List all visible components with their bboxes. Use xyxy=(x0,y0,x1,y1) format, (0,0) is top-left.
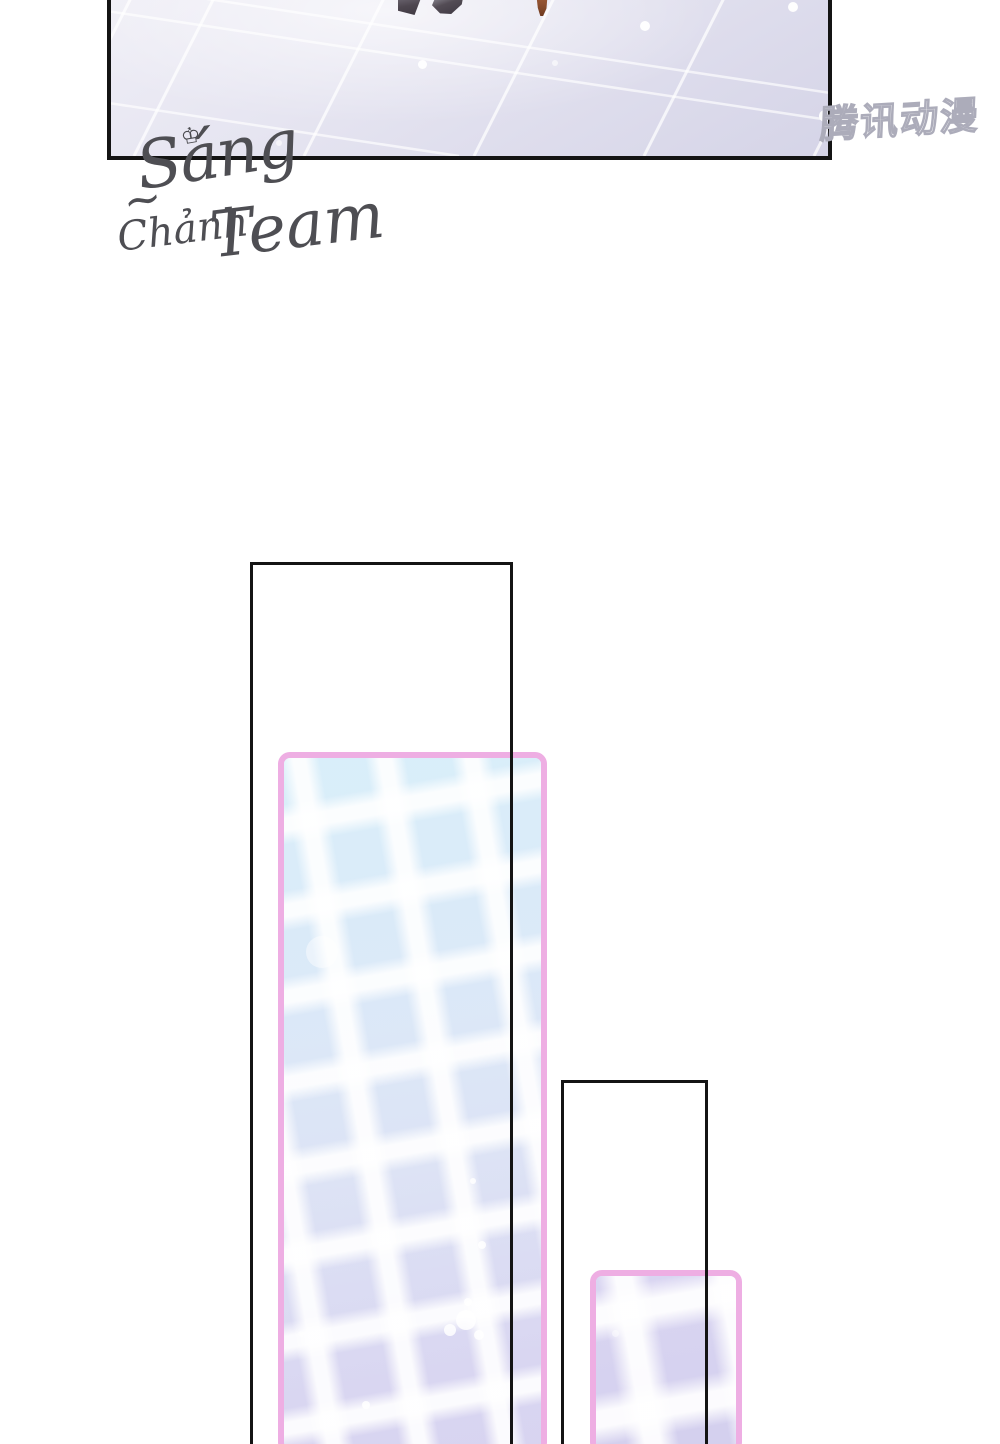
sparkle-dot xyxy=(552,60,558,66)
sparkle-dot xyxy=(788,2,798,12)
sparkle-dot xyxy=(418,60,427,69)
panel-frame-large xyxy=(250,562,513,1444)
comic-page: 腾讯动漫 ♔ Sáng ~ Chảnh Team xyxy=(0,0,1000,1444)
signature-word-team: Team xyxy=(207,184,388,269)
sparkle-dot xyxy=(640,21,650,31)
tencent-comics-watermark: 腾讯动漫 xyxy=(819,97,980,145)
panel-frame-small xyxy=(561,1080,708,1444)
